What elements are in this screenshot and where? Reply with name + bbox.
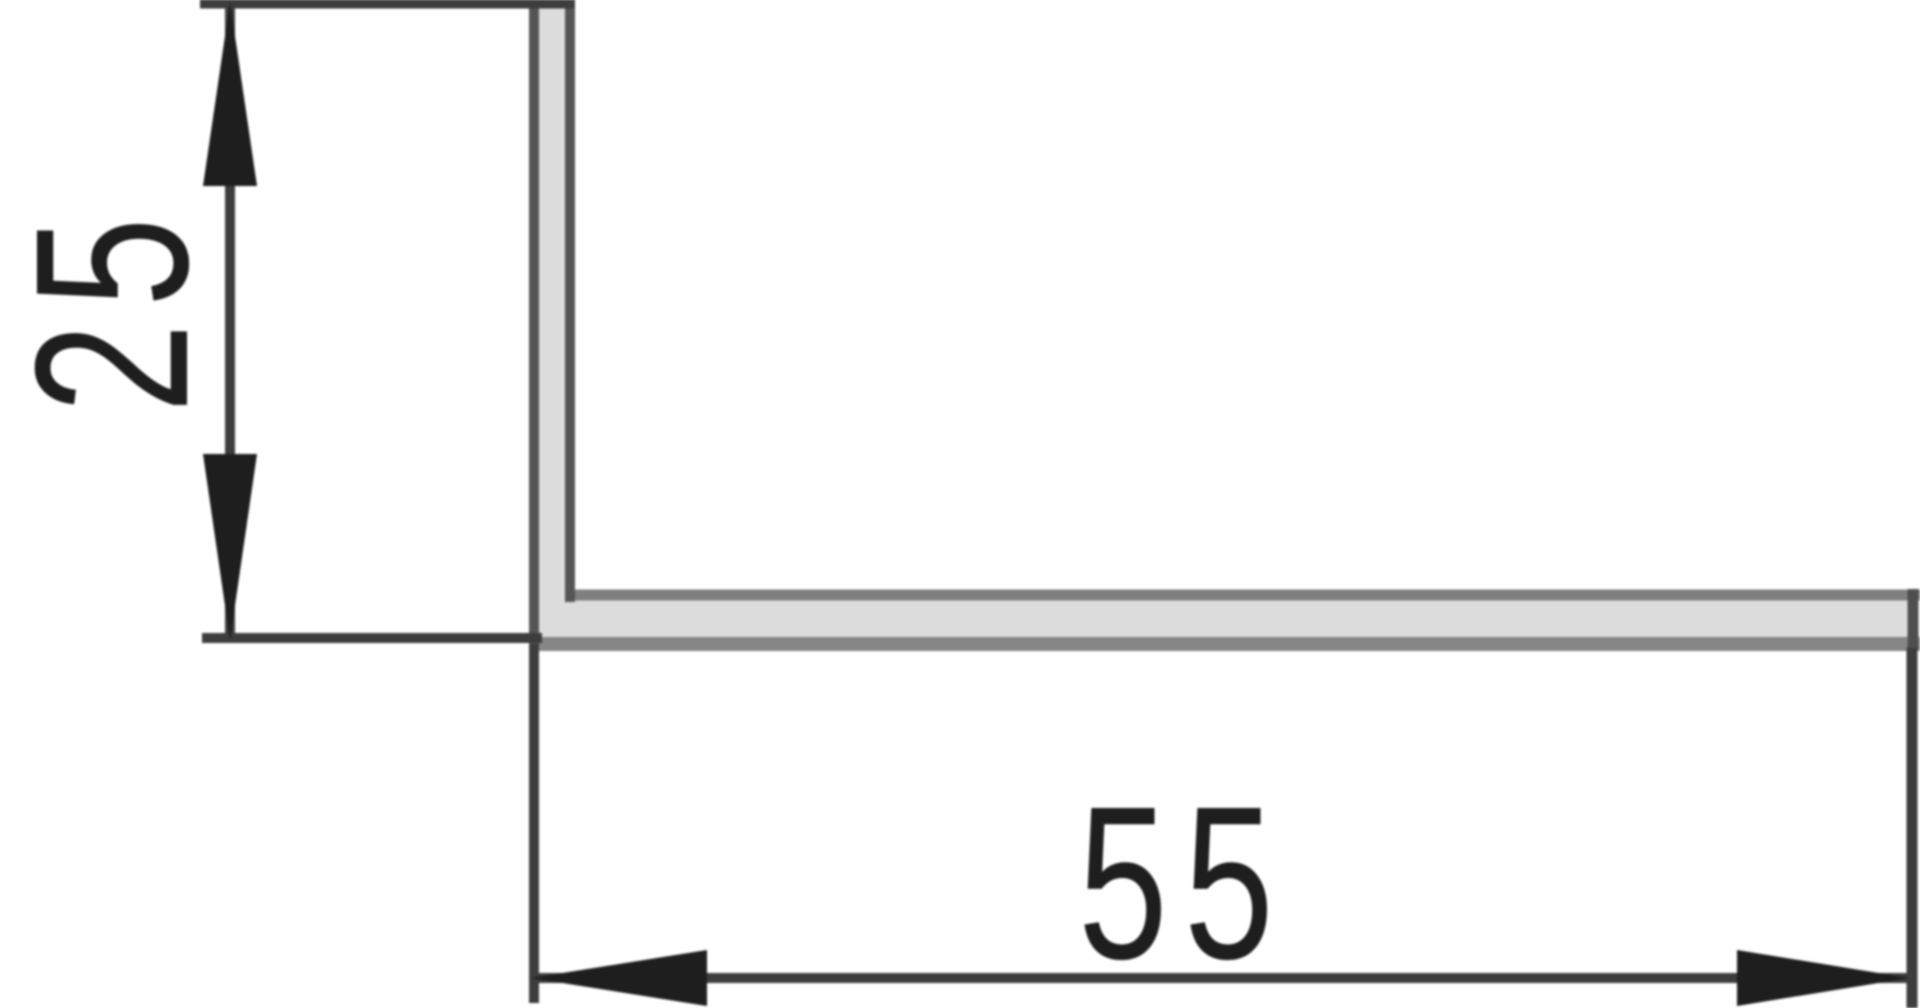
drawing-page: 25 55 [0,0,1920,1008]
dimension-label-vertical: 25 [0,201,234,413]
technical-drawing-canvas: 25 55 [0,0,1920,1008]
dimension-label-horizontal: 55 [1078,760,1290,1004]
drawing-background [0,0,1920,1008]
